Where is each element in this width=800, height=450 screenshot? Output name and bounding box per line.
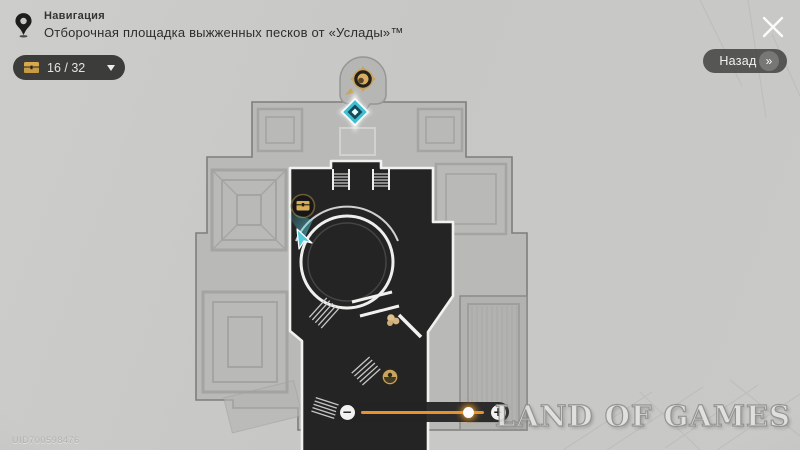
header: Навигация Отборочная площадка выжженных … (14, 10, 404, 40)
chest-marker[interactable] (292, 195, 315, 218)
zoom-slider-track[interactable] (361, 411, 484, 414)
chest-counter-value: 16 / 32 (47, 61, 85, 75)
map-screen: Навигация Отборочная площадка выжженных … (0, 0, 800, 450)
close-button[interactable] (758, 12, 788, 42)
zoom-out-button[interactable]: − (340, 405, 355, 420)
nav-label: Навигация (44, 10, 404, 22)
chest-icon (23, 61, 40, 74)
back-button[interactable]: Назад » (703, 49, 787, 73)
chest-counter-button[interactable]: 16 / 32 (13, 55, 125, 80)
map-title: Отборочная площадка выжженных песков от … (44, 25, 404, 40)
chest-icon (297, 201, 310, 211)
location-pin-icon (14, 12, 33, 38)
back-button-label: Назад (709, 54, 759, 68)
zoom-slider[interactable]: − + (336, 402, 509, 422)
chevron-down-icon (107, 65, 115, 71)
uid-label: UID700598476 (12, 435, 80, 445)
close-icon (760, 14, 786, 40)
site-watermark: LAND OF GAMES (495, 399, 791, 433)
zoom-slider-knob[interactable] (463, 407, 474, 418)
chevron-right-icon: » (759, 51, 779, 71)
